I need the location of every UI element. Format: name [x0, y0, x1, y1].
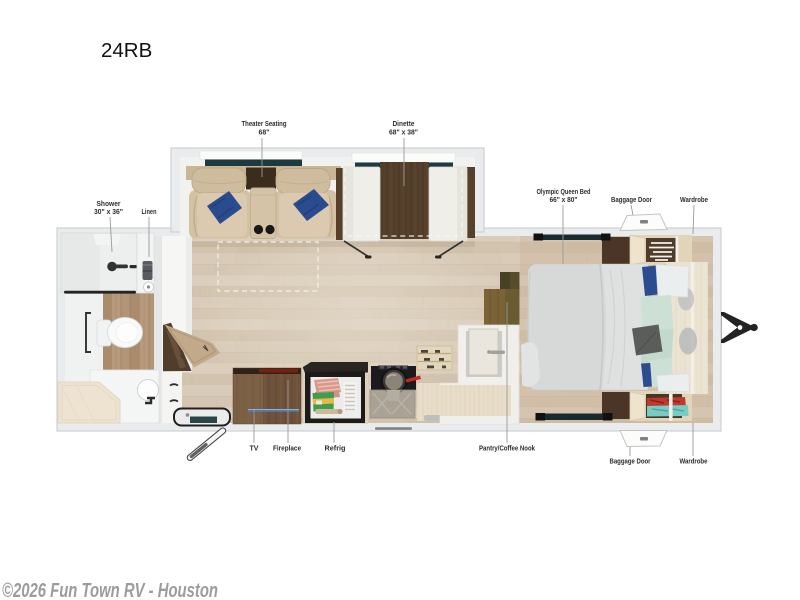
svg-text:Baggage Door: Baggage Door	[611, 195, 652, 204]
svg-text:66" x 80": 66" x 80"	[550, 195, 578, 204]
svg-text:30" x 36": 30" x 36"	[94, 207, 123, 216]
svg-text:TV: TV	[250, 444, 260, 453]
svg-text:Baggage Door: Baggage Door	[610, 457, 651, 466]
svg-text:Linen: Linen	[142, 207, 157, 216]
svg-text:Pantry/Coffee Nook: Pantry/Coffee Nook	[479, 444, 536, 453]
svg-text:68" x 38": 68" x 38"	[389, 128, 418, 137]
svg-text:©2026 Fun Town RV - Houston: ©2026 Fun Town RV - Houston	[2, 580, 218, 600]
svg-text:24RB: 24RB	[101, 39, 152, 62]
svg-text:Fireplace: Fireplace	[273, 444, 301, 453]
svg-text:Wardrobe: Wardrobe	[680, 195, 708, 204]
svg-text:Refrig: Refrig	[325, 444, 346, 453]
svg-text:68": 68"	[259, 128, 270, 137]
svg-text:Wardrobe: Wardrobe	[680, 457, 708, 466]
